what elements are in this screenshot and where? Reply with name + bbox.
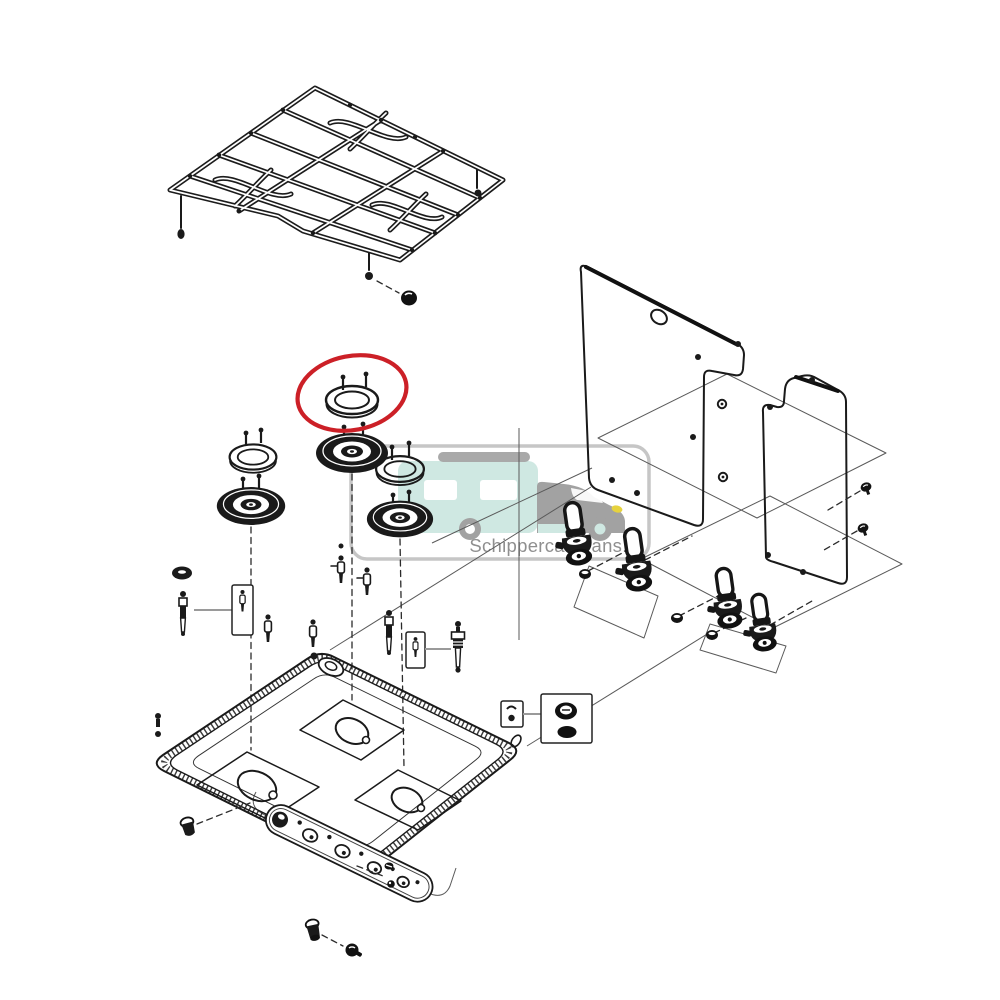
injector [265,614,272,642]
caravan-motorhome-icon [398,452,625,541]
grommet [719,473,727,481]
burner-cap-left: Burner cap [217,474,285,525]
injector [331,544,344,584]
injector [357,567,370,595]
ignition-knobs [305,918,363,957]
pan-support-grid: Pan support grid Rubber foot [170,88,503,306]
burner-ring-highlighted: Burner ring (highlighted part) [326,372,378,418]
gasket-oval [172,567,192,580]
thermocouple: Thermocouple [452,621,465,673]
glass-lid-large: Lid panel (large) [581,266,744,526]
burner-ring-left: Burner ring [230,428,277,473]
tray-side-tab [509,733,523,748]
burner-recess [300,700,404,760]
control-panel-strip: Control panel strip [261,800,438,907]
knob [180,816,197,837]
diagram-canvas: Schippercaravans.nl Schippercaravans.nl [0,0,1000,1000]
knob [305,918,322,942]
burner-recess [355,770,461,830]
ignition-electrode-left: Ignition electrode [179,591,187,636]
grommet [718,400,726,408]
lid-screw-holes [765,377,815,575]
injector-callout-middle: Injector (detail box) [406,632,451,668]
screw [346,944,363,958]
exploded-parts-diagram: Schippercaravans.nl Schippercaravans.nl [0,0,1000,1000]
rubber-foot: Rubber foot [401,291,417,306]
injector [310,619,317,647]
highlight-marker: Red highlight marker [291,346,413,440]
ignition-electrode-middle: Ignition electrode [385,610,393,655]
hob-tray: Hob tray Contro [155,653,523,907]
injector-callout-left: Injector (detail box) [194,585,253,635]
